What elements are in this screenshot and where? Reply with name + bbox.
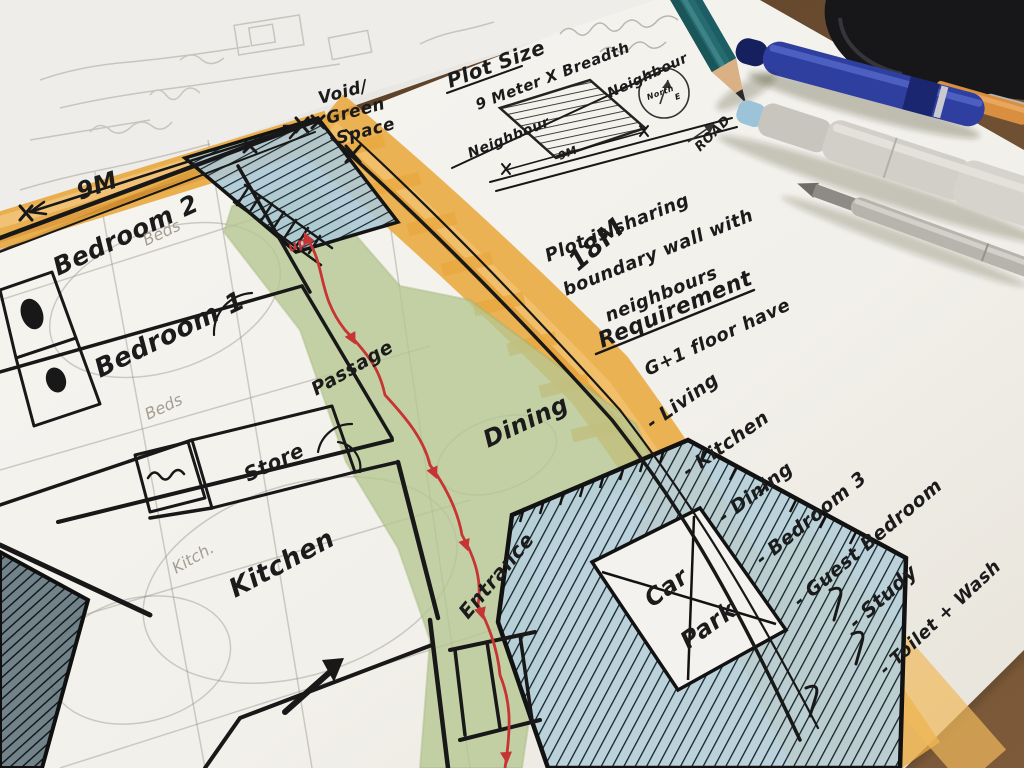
sketch-photo-svg: Bedroom 2 Bedroom 1 Store Kitchen Dining… xyxy=(0,0,1024,768)
photo-of-architectural-sketch: Bedroom 2 Bedroom 1 Store Kitchen Dining… xyxy=(0,0,1024,768)
